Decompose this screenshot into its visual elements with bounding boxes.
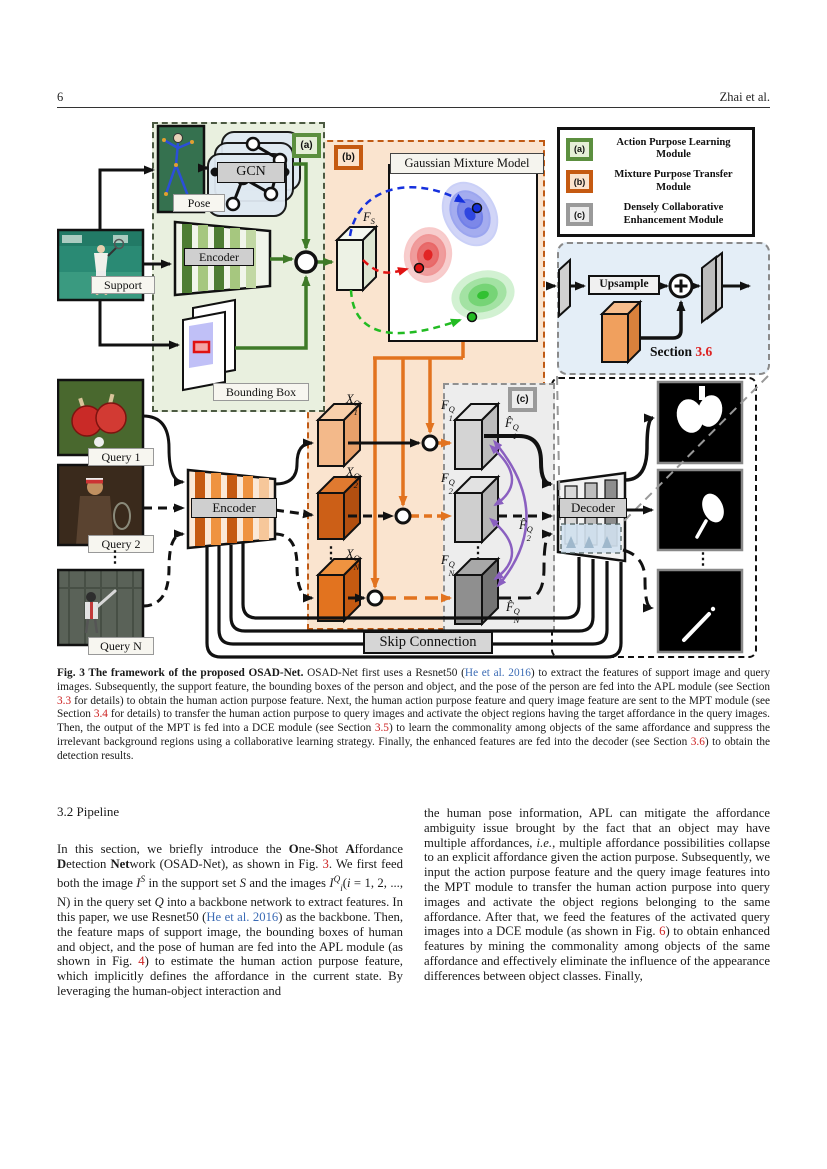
skip-connection-label: Skip Connection: [363, 631, 493, 654]
f2-label: FQ2: [441, 471, 455, 496]
f1-hat-label: F̂Q1: [505, 416, 519, 441]
apl-badge-icon: (a): [566, 138, 593, 161]
f1-label: FQ1: [441, 398, 455, 423]
x2-label: XQ2: [346, 465, 360, 490]
apl-badge-icon: (a): [292, 133, 321, 158]
fn-hat-label: F̂QN: [506, 600, 520, 625]
support-feature-label: FS: [363, 210, 375, 226]
legend-label: Action Purpose Learning Module: [601, 137, 746, 162]
support-encoder-label: Encoder: [184, 248, 254, 266]
query1-image: [58, 380, 143, 455]
f-ellipsis: ⋮: [470, 546, 486, 562]
mpt-badge-icon: (b): [566, 170, 593, 193]
dce-badge-icon: (c): [566, 203, 593, 226]
citation-link[interactable]: He et al. 2016: [206, 910, 278, 924]
queryn-label: Query N: [88, 637, 154, 655]
pose-label: Pose: [173, 194, 225, 212]
mask-ellipsis: ⋮: [695, 552, 711, 568]
section-ref[interactable]: 3.4: [94, 708, 108, 720]
header-rule: [57, 107, 770, 108]
figure-legend: (a) Action Purpose Learning Module (b) M…: [557, 127, 755, 237]
query-ellipsis: ⋮: [107, 550, 123, 566]
gmm-box: [388, 164, 538, 342]
section-ref[interactable]: 3.5: [375, 722, 389, 734]
legend-label: Densely Collaborative Enhancement Module: [601, 202, 746, 227]
running-head: 6 Zhai et al.: [57, 90, 770, 106]
section-ref[interactable]: 3.3: [57, 695, 71, 707]
section-ref[interactable]: 3.6: [695, 344, 712, 359]
gcn-label: GCN: [217, 162, 285, 183]
legend-label: Mixture Purpose Transfer Module: [601, 169, 746, 194]
running-head-authors: Zhai et al.: [720, 90, 770, 105]
citation-link[interactable]: He et al. 2016: [465, 667, 531, 679]
xn-label: XQN: [346, 547, 360, 572]
legend-row-mpt: (b) Mixture Purpose Transfer Module: [566, 169, 746, 194]
body-column-right: the human pose information, APL can miti…: [424, 806, 770, 984]
legend-row-apl: (a) Action Purpose Learning Module: [566, 137, 746, 162]
dce-badge-icon: (c): [508, 387, 537, 412]
figure-caption: Fig. 3 The framework of the proposed OSA…: [57, 667, 770, 763]
queryn-image: [58, 570, 143, 645]
support-label: Support: [91, 276, 155, 294]
page-number: 6: [57, 90, 63, 105]
query-encoder-label: Encoder: [191, 498, 277, 518]
decoder-label: Decoder: [559, 498, 627, 518]
dce-module-box: [443, 383, 555, 632]
paper-page: 6 Zhai et al. (a) Action Purpose Learnin…: [0, 0, 827, 1169]
body-column-left: In this section, we briefly introduce th…: [57, 842, 403, 999]
mpt-badge-icon: (b): [334, 145, 363, 170]
query2-image: [58, 465, 143, 545]
x-ellipsis: ⋮: [323, 546, 339, 562]
f2-hat-label: F̂Q2: [519, 518, 533, 543]
section-ref[interactable]: 3.6: [691, 736, 705, 748]
section-heading: 3.2 Pipeline: [57, 804, 403, 820]
figure-3-diagram: (a) Action Purpose Learning Module (b) M…: [57, 118, 770, 666]
bounding-box-label: Bounding Box: [213, 383, 309, 401]
section-36-caption: Section 3.6: [650, 344, 712, 360]
fn-label: FQN: [441, 553, 455, 578]
legend-row-dce: (c) Densely Collaborative Enhancement Mo…: [566, 202, 746, 227]
query1-label: Query 1: [88, 448, 154, 466]
x1-label: XQ1: [346, 392, 360, 417]
upsample-label: Upsample: [588, 275, 660, 295]
gmm-title: Gaussian Mixture Model: [390, 153, 544, 174]
